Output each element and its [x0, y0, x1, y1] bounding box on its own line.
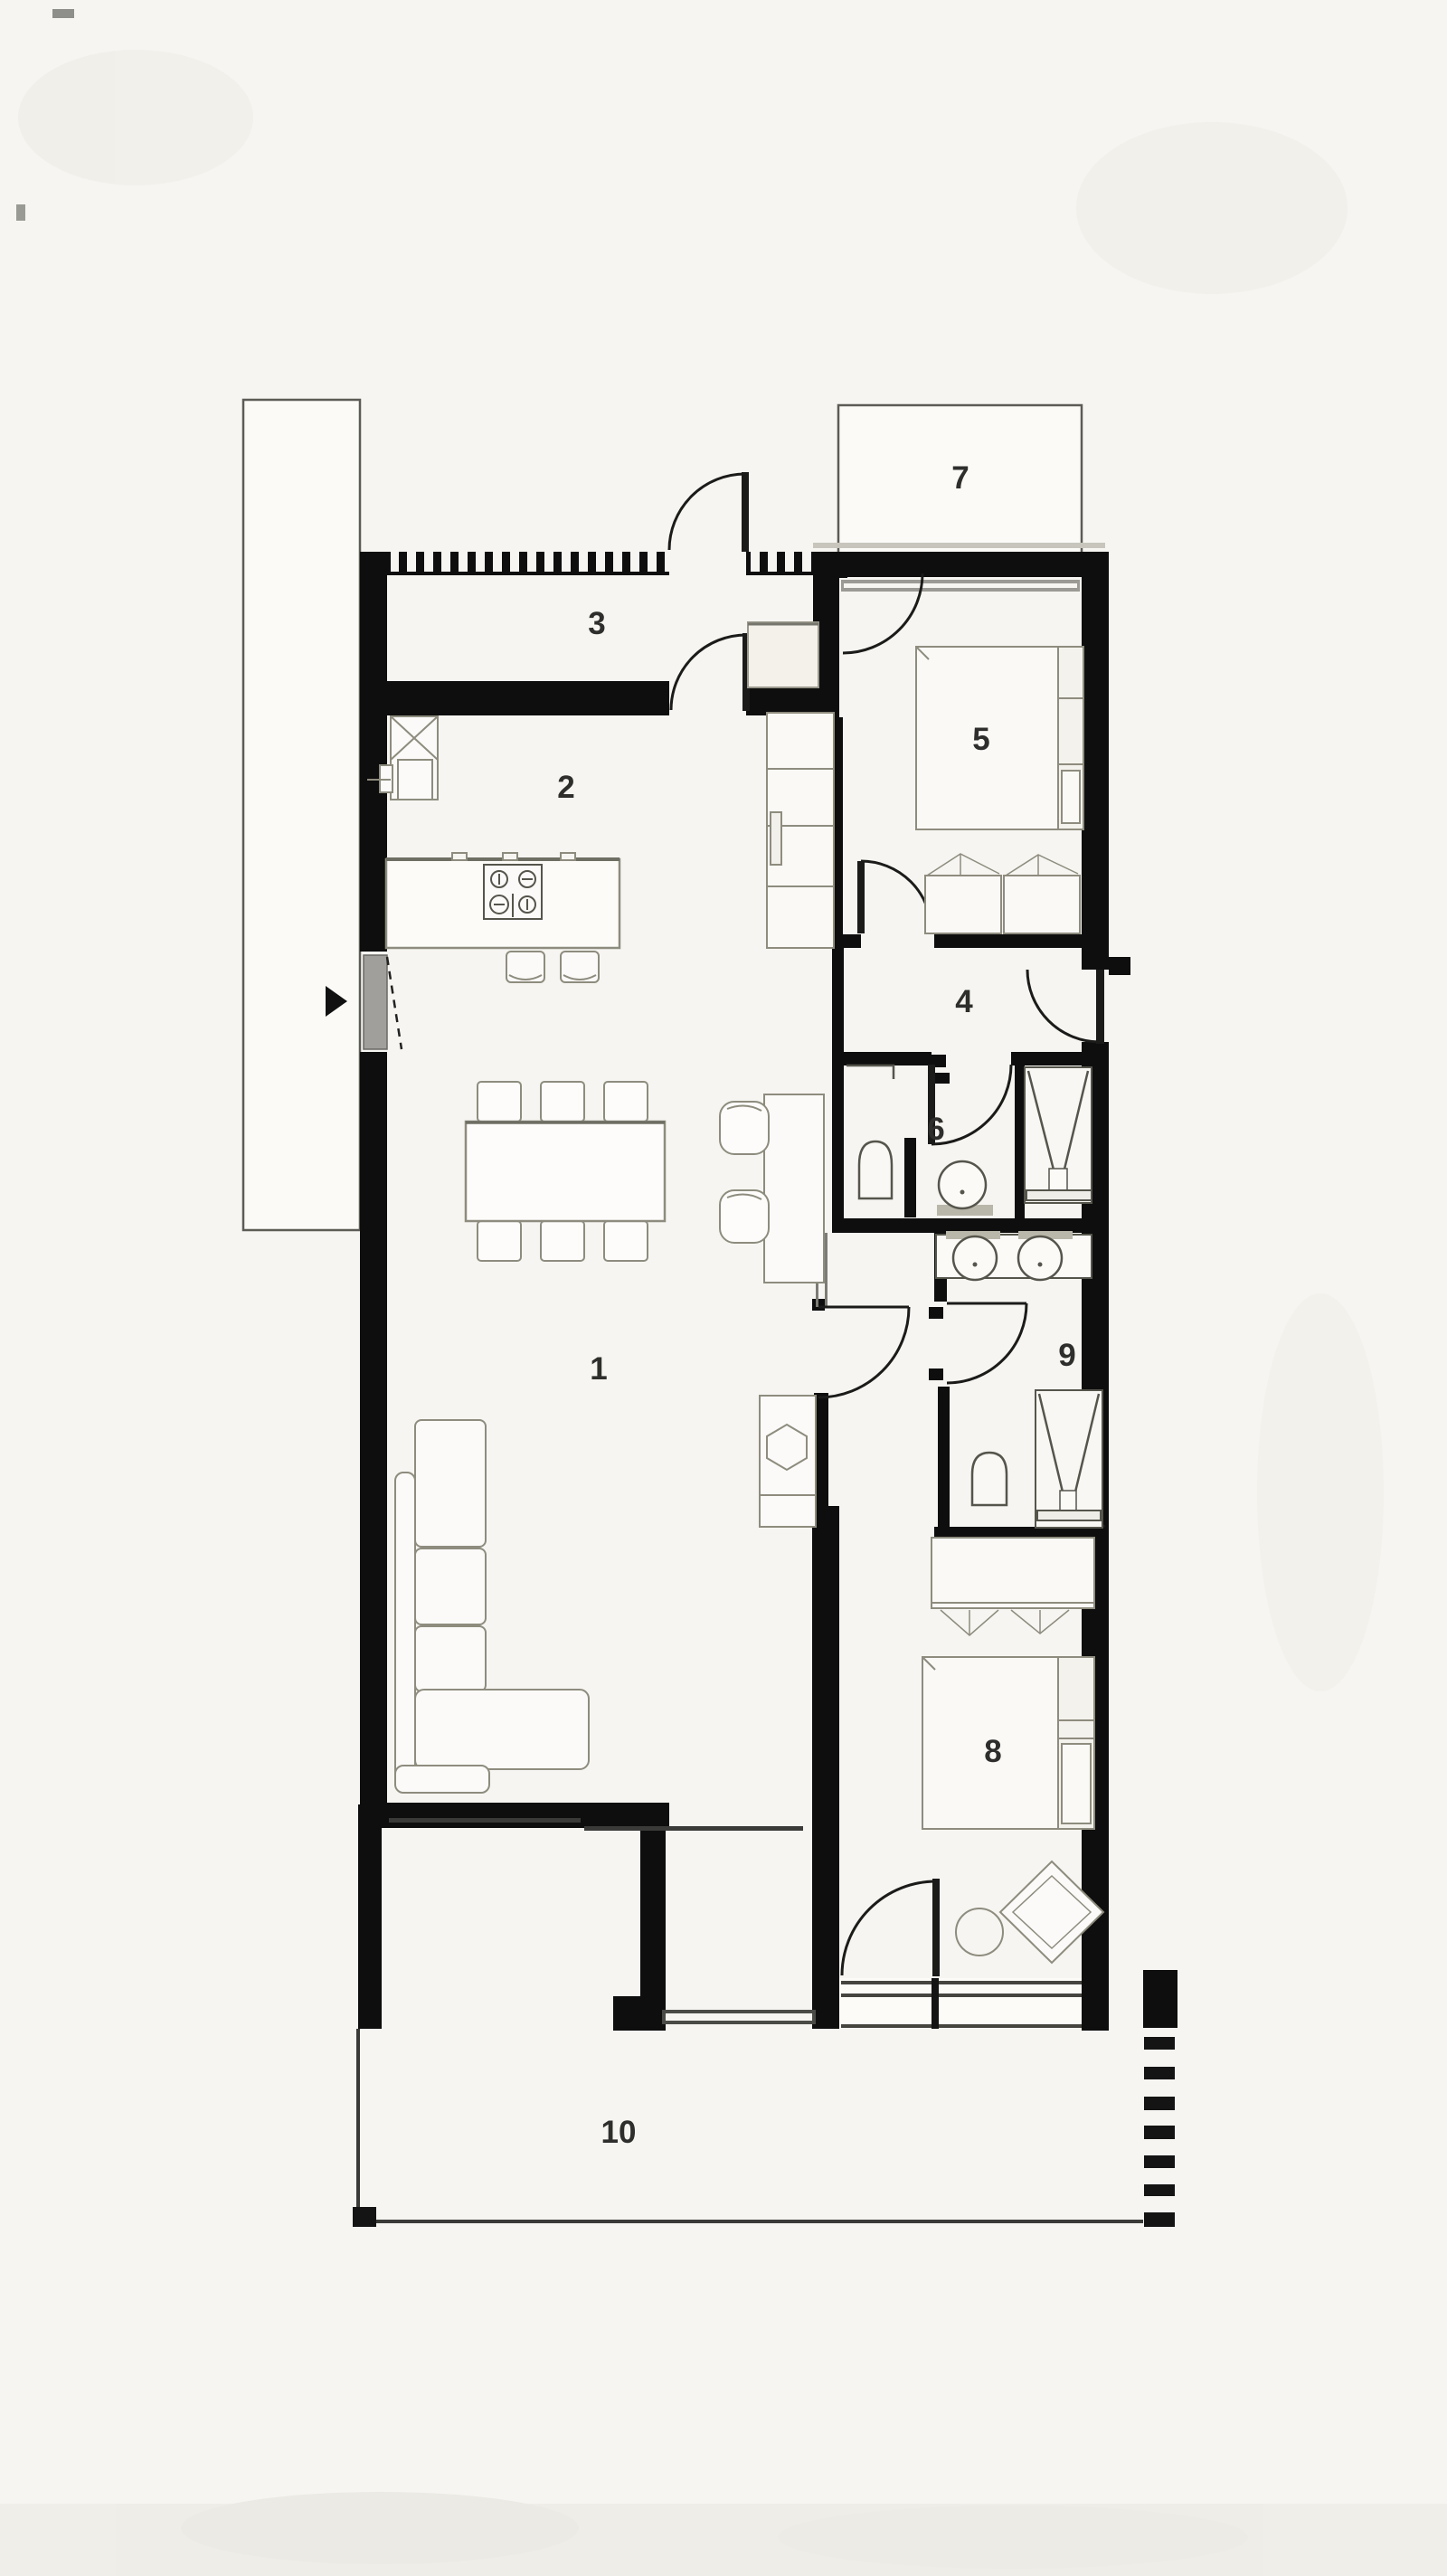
main-entry-top-door: [669, 472, 749, 552]
room-label-6: 6: [927, 1112, 944, 1147]
cabinet-hexagon-basin: [760, 1396, 816, 1527]
room-3-entry-hall-furniture: [748, 622, 818, 687]
wardrobe-8: [932, 1538, 1094, 1635]
bedroom1-door: [843, 573, 922, 653]
room-8-bedroom-furniture: [922, 1538, 1103, 1963]
terrace-outline: [358, 2029, 1143, 2221]
room-1-living-furniture: [395, 1082, 824, 1793]
paper-artifacts: [0, 9, 1447, 2576]
property-dash-line: [1144, 2037, 1175, 2227]
desk-with-chairs: [720, 1094, 824, 1283]
bar-stools: [506, 952, 599, 982]
toilet-6: [859, 1141, 892, 1198]
room-label-8: 8: [984, 1734, 1001, 1769]
entry-side-door: [364, 955, 402, 1049]
terrace-corner-post: [353, 2207, 376, 2227]
room-label-3: 3: [588, 606, 605, 641]
corner-pillar: [1143, 1970, 1177, 2028]
room-label-10: 10: [601, 2115, 637, 2150]
room-label-7: 7: [951, 460, 969, 496]
bedroom2-terrace-door: [842, 1879, 940, 1976]
cooktop-4-burner-icon: [484, 865, 542, 919]
room-label-4: 4: [955, 984, 973, 1019]
room-label-1: 1: [590, 1351, 607, 1387]
dining-table-6-chairs: [466, 1082, 665, 1261]
floor-plan-drawing: 1 2 3 4 5 6 7 8 9 10: [0, 0, 1447, 2576]
room-2-kitchen-furniture: [367, 713, 834, 982]
hall-kitchen-door: [671, 633, 750, 711]
room-label-5: 5: [972, 722, 989, 757]
tall-cabinet-run: [767, 713, 834, 948]
room-9-ensuite-fixtures: [936, 1231, 1102, 1528]
room-label-9: 9: [1058, 1338, 1075, 1373]
washbasin-6: [937, 1161, 993, 1216]
wall-shelf: [846, 1065, 894, 1079]
bedroom1-top-window: [841, 580, 1080, 592]
shower-9: [1036, 1390, 1102, 1528]
hallway-exterior-door: [1027, 970, 1104, 1044]
double-bed-8: [922, 1657, 1094, 1829]
room-6-bathroom-fixtures: [846, 1065, 1092, 1216]
double-washbasin: [936, 1231, 1092, 1280]
shower-6: [1025, 1067, 1092, 1203]
bedroom2-window-band: [839, 1978, 1082, 2029]
room-label-2: 2: [557, 770, 574, 805]
corridor-door: [818, 1307, 909, 1397]
shoe-cabinet: [748, 622, 818, 687]
side-yard-outline: [243, 400, 360, 1230]
double-bed-5: [916, 647, 1083, 829]
room-5-bedroom-furniture: [916, 647, 1083, 933]
l-shaped-sofa: [395, 1420, 589, 1793]
round-side-table: [956, 1908, 1003, 1956]
floor-plan-page: 1 2 3 4 5 6 7 8 9 10: [0, 0, 1447, 2576]
terrace-glass-door: [662, 2010, 816, 2024]
ensuite-door: [947, 1303, 1026, 1383]
dressing-door: [857, 861, 932, 933]
toilet-9: [972, 1453, 1007, 1505]
storage-bench-5: [925, 854, 1080, 933]
